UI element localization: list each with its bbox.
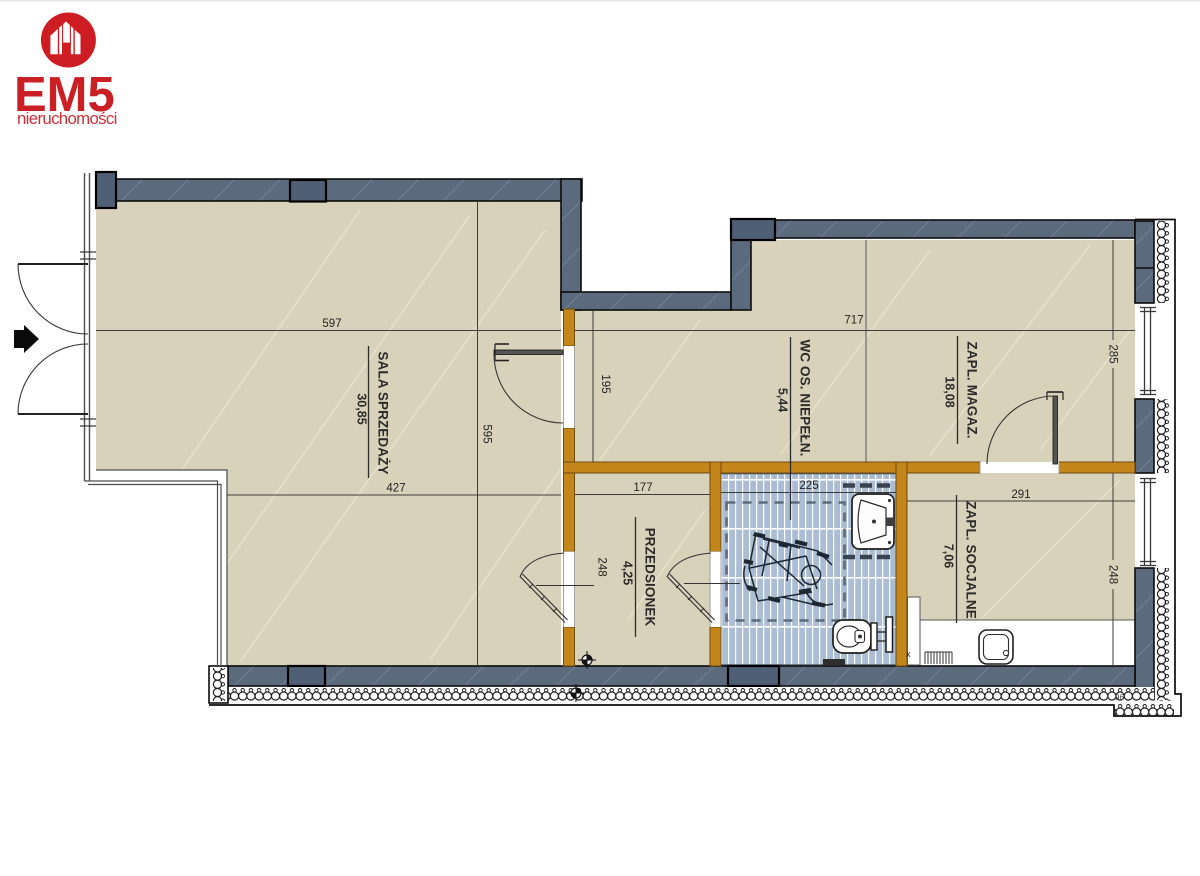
svg-text:x: x (906, 649, 911, 659)
svg-text:717: 717 (844, 315, 863, 327)
svg-text:291: 291 (1011, 489, 1030, 501)
svg-text:595: 595 (481, 424, 493, 443)
svg-text:7,06: 7,06 (942, 544, 956, 568)
svg-text:248: 248 (596, 557, 608, 576)
svg-text:427: 427 (386, 483, 405, 495)
svg-text:4,25: 4,25 (621, 561, 635, 585)
svg-text:nieruchomości: nieruchomości (17, 109, 117, 128)
svg-text:597: 597 (322, 318, 341, 330)
svg-text:248: 248 (1107, 565, 1119, 584)
svg-text:96: 96 (1115, 693, 1124, 702)
svg-text:WC OS. NIEPEŁN.: WC OS. NIEPEŁN. (798, 339, 813, 456)
svg-text:18,08: 18,08 (943, 376, 957, 407)
svg-text:PRZEDSIONEK: PRZEDSIONEK (643, 528, 658, 627)
svg-text:225: 225 (799, 480, 818, 492)
svg-text:30,85: 30,85 (355, 393, 369, 424)
svg-text:ZAPL. MAGAZ.: ZAPL. MAGAZ. (965, 341, 980, 438)
svg-text:195: 195 (599, 374, 611, 393)
svg-text:5,44: 5,44 (776, 388, 790, 412)
svg-text:285: 285 (1107, 344, 1119, 363)
svg-text:177: 177 (633, 482, 652, 494)
svg-text:SALA SPRZEDAŻY: SALA SPRZEDAŻY (376, 351, 391, 474)
svg-text:ZAPL. SOCJALNE: ZAPL. SOCJALNE (964, 501, 979, 619)
